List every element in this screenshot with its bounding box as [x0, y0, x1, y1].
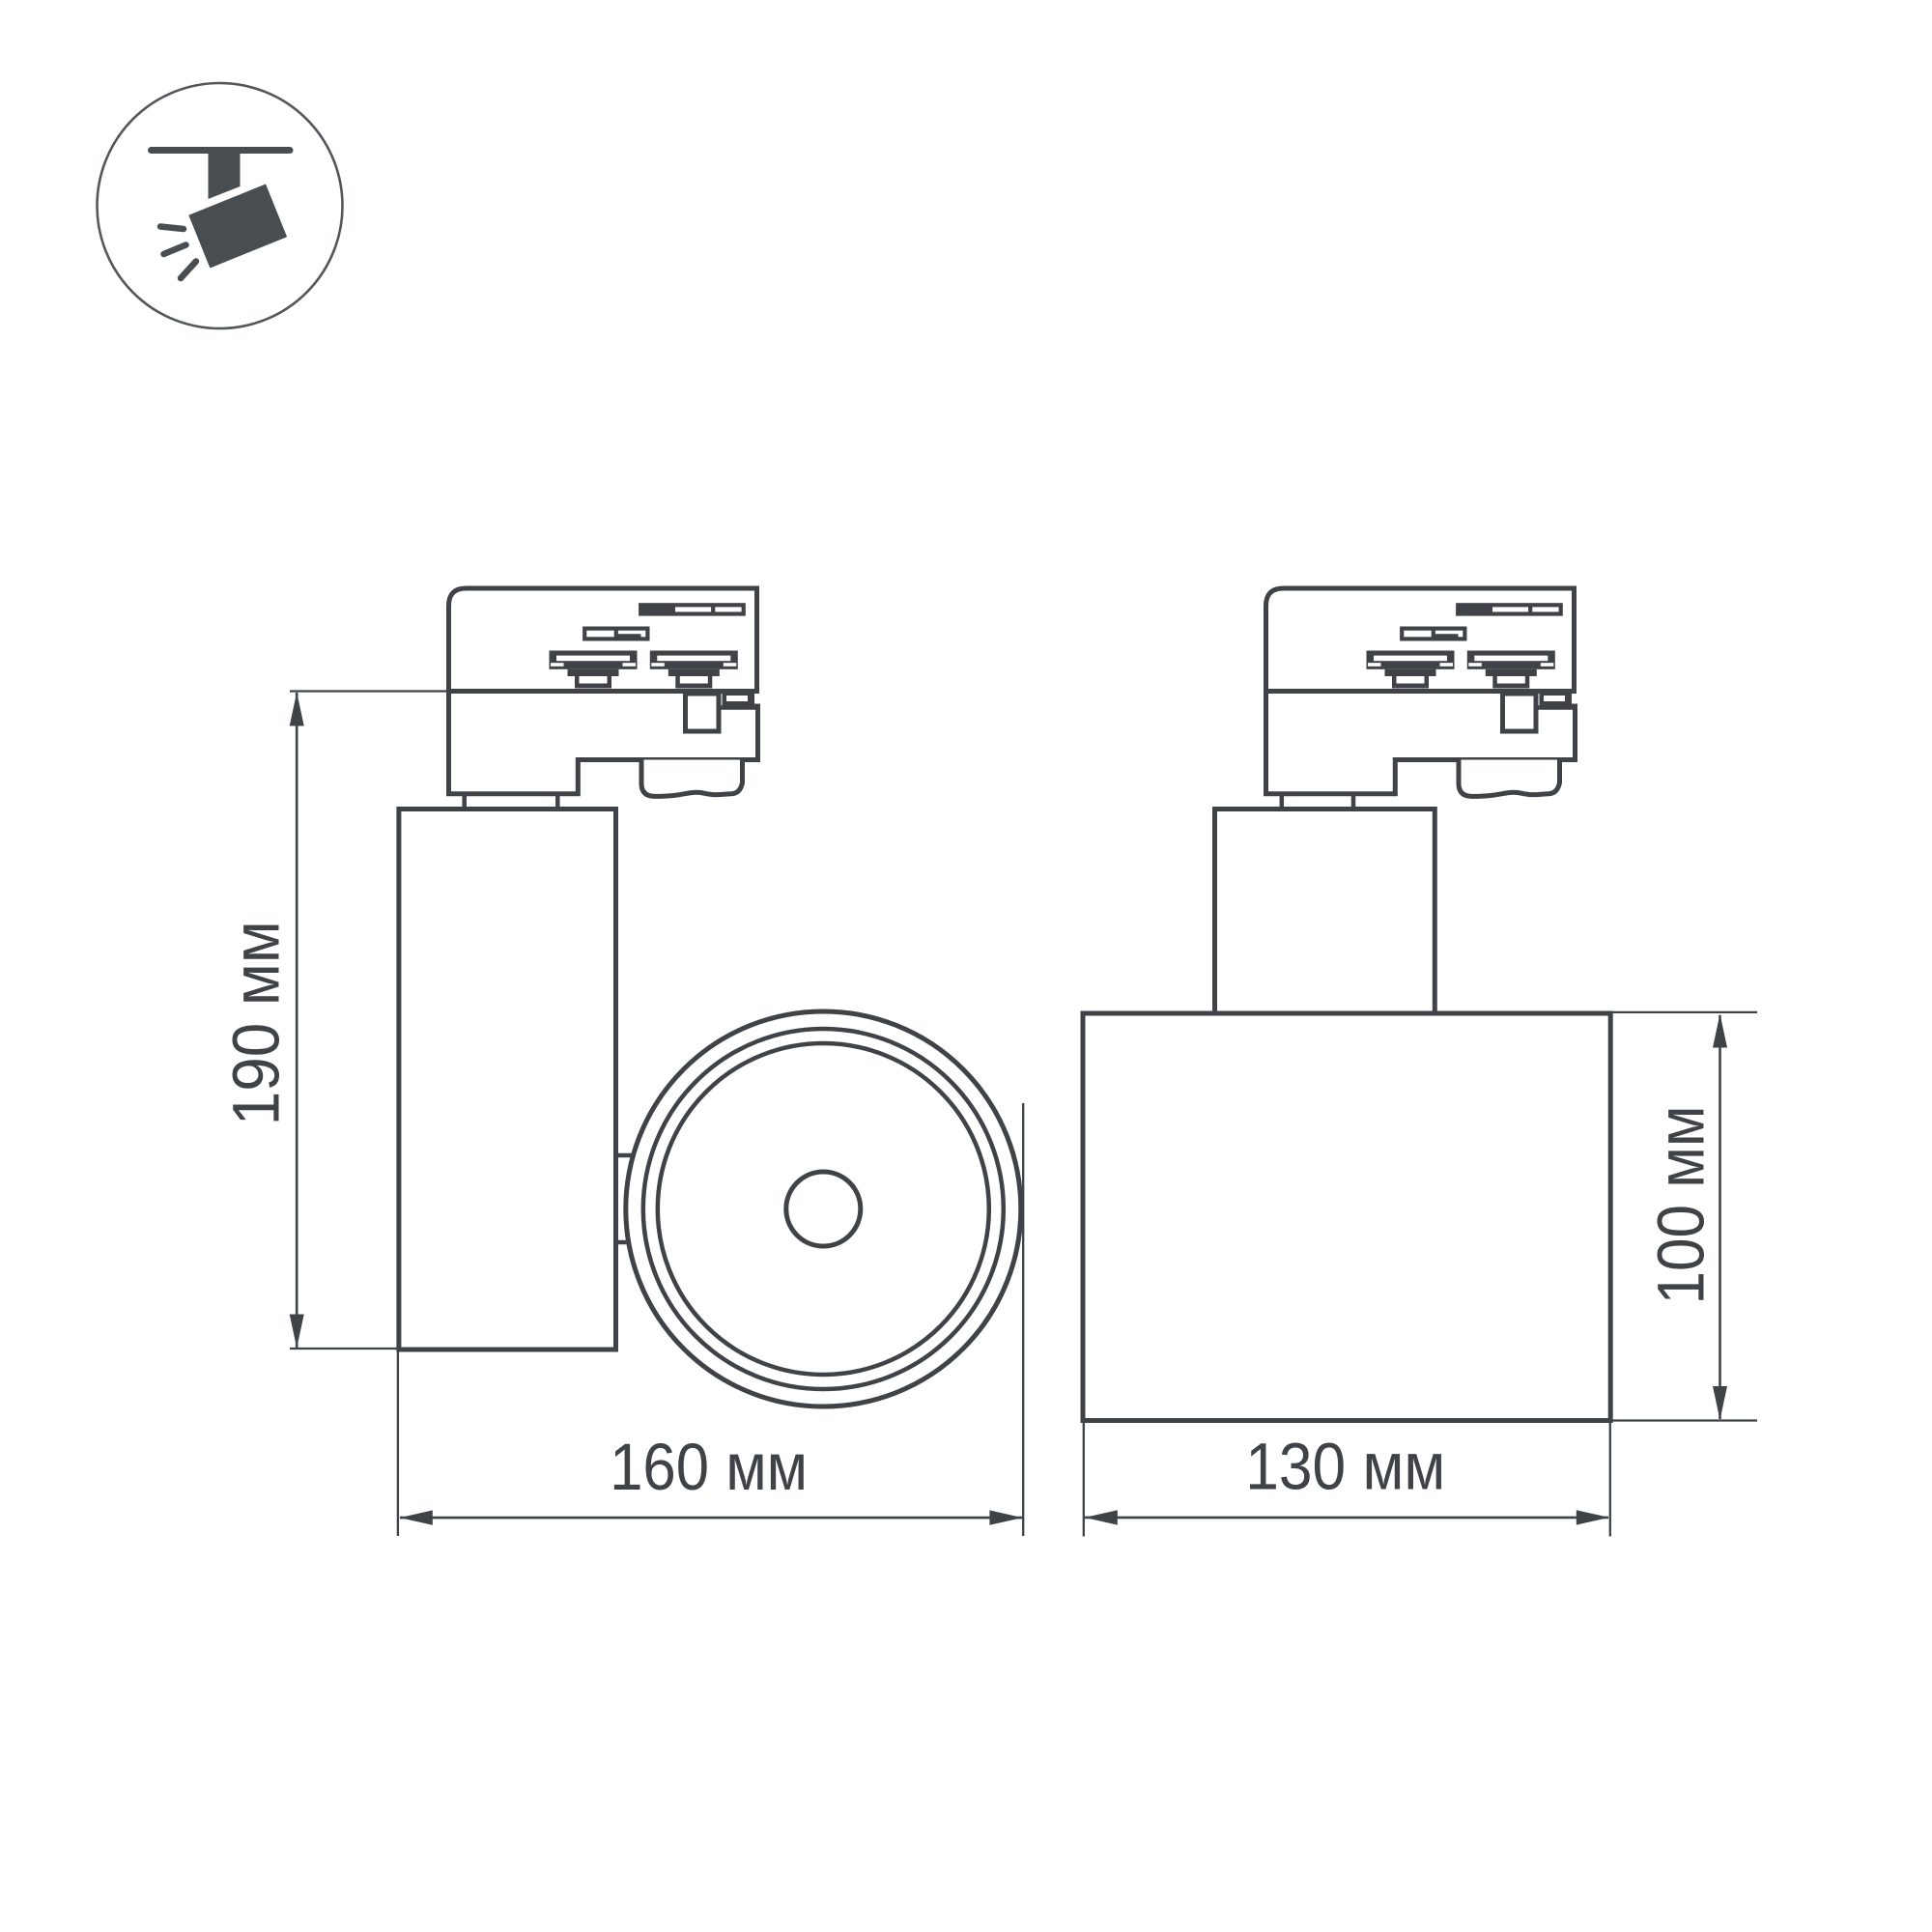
svg-text:130 мм: 130 мм [1245, 1430, 1445, 1504]
svg-text:190 мм: 190 мм [219, 921, 294, 1125]
svg-text:100 мм: 100 мм [1644, 1106, 1719, 1305]
svg-text:160 мм: 160 мм [610, 1430, 808, 1504]
